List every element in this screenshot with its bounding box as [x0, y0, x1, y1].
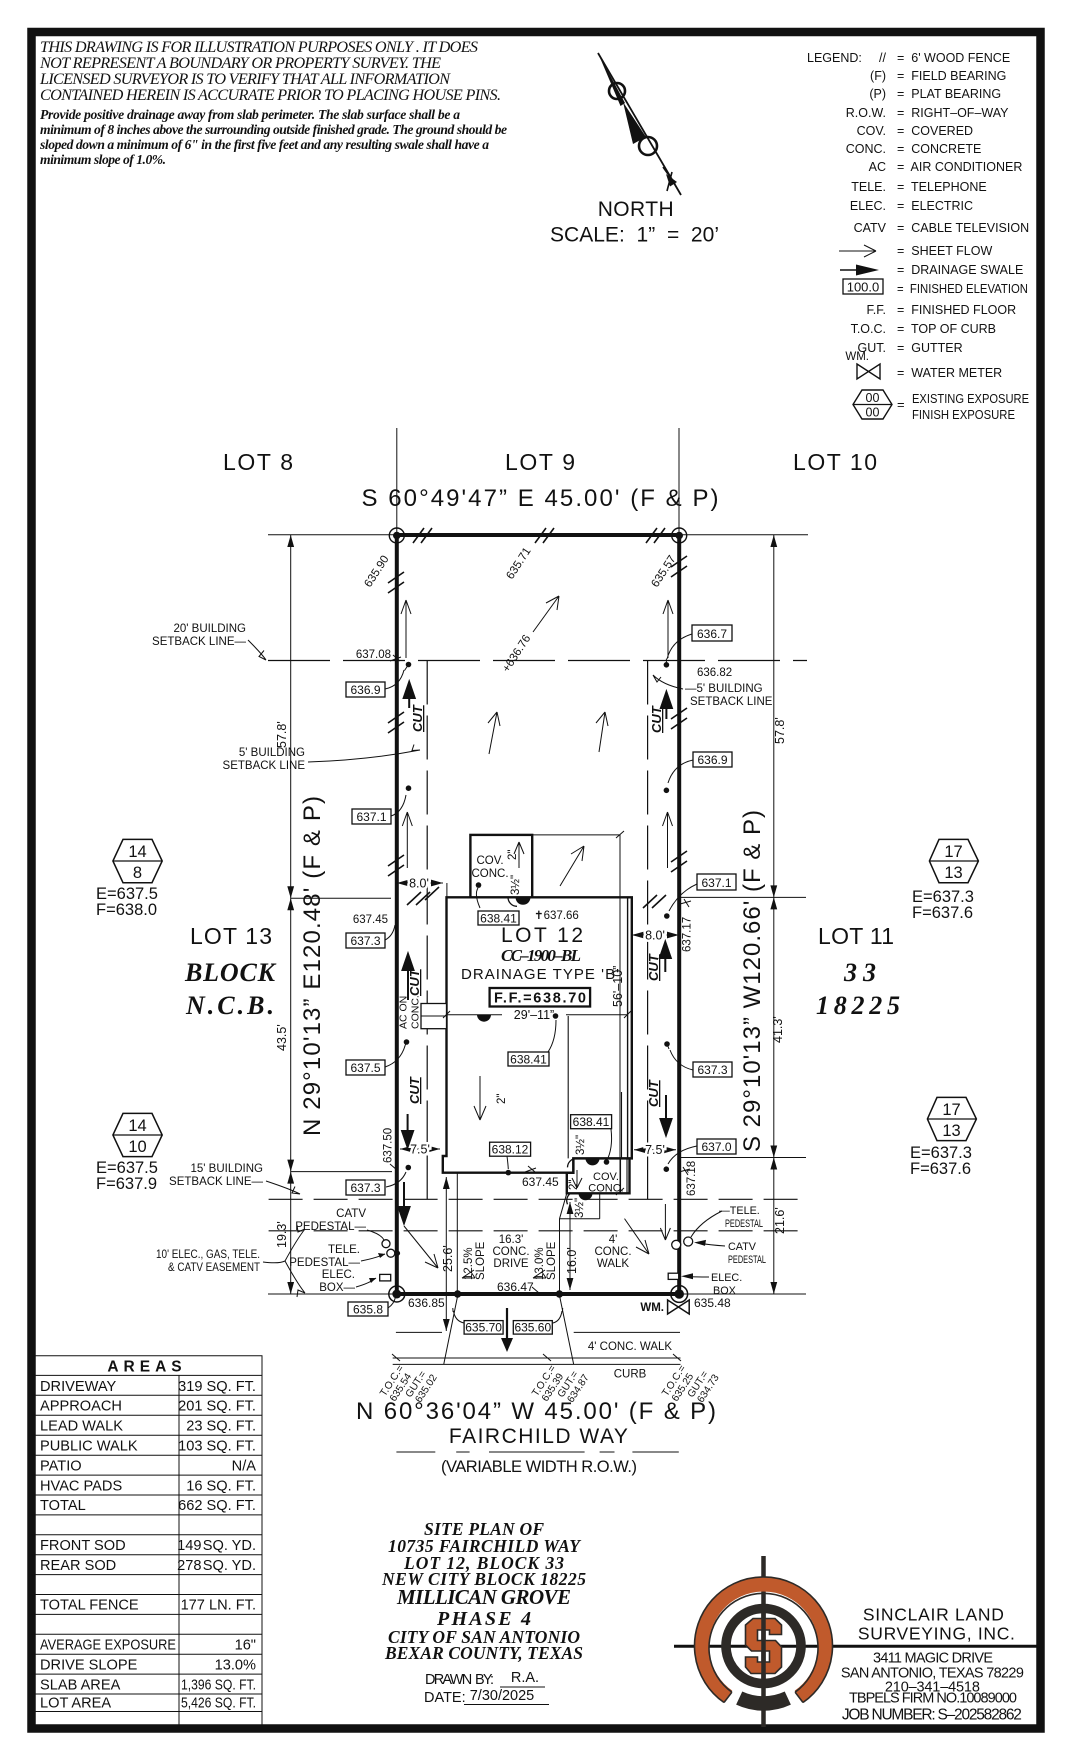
svg-text:201 SQ. FT.: 201 SQ. FT. — [178, 1399, 256, 1415]
svg-text:3½": 3½" — [510, 875, 522, 895]
svg-text:BOX: BOX — [713, 1285, 736, 1297]
svg-text:637.0: 637.0 — [701, 1140, 731, 1154]
svg-text:BEXAR COUNTY, TEXAS: BEXAR COUNTY, TEXAS — [384, 1643, 583, 1663]
svg-text:= 6' WOOD FENCE: = 6' WOOD FENCE — [897, 51, 1010, 65]
svg-text:AREAS: AREAS — [107, 1359, 186, 1376]
svg-text:7/30/2025: 7/30/2025 — [470, 1688, 535, 1704]
svg-text:TELE.: TELE. — [851, 180, 886, 194]
svg-text:13: 13 — [942, 1122, 960, 1140]
svg-text:= FINISHED FLOOR: = FINISHED FLOOR — [897, 303, 1016, 317]
svg-text:637.1: 637.1 — [701, 876, 731, 890]
svg-text:637.3: 637.3 — [350, 934, 380, 948]
svg-text:8: 8 — [133, 864, 142, 882]
svg-text:100.0: 100.0 — [847, 280, 880, 295]
svg-text:= FIELD BEARING: = FIELD BEARING — [897, 69, 1006, 83]
svg-text:minimum of 8 inches above the: minimum of 8 inches above the surroundin… — [40, 122, 507, 137]
svg-text:= FINISHED ELEVATION: = FINISHED ELEVATION — [897, 282, 1028, 296]
svg-text:APPROACH: APPROACH — [40, 1399, 122, 1415]
svg-text:637.08: 637.08 — [356, 649, 391, 661]
svg-text:R.O.W.: R.O.W. — [846, 106, 886, 120]
svg-text:ELEC.: ELEC. — [711, 1272, 742, 1284]
svg-text:00: 00 — [866, 406, 880, 420]
svg-text:TOTAL FENCE: TOTAL FENCE — [40, 1598, 139, 1614]
svg-text:2": 2" — [496, 1094, 508, 1104]
svg-text:= GUTTER: = GUTTER — [897, 341, 963, 355]
svg-text:F=638.0: F=638.0 — [96, 901, 157, 919]
svg-text:LEGEND:: LEGEND: — [807, 51, 862, 65]
svg-text:LOT 11: LOT 11 — [818, 923, 894, 949]
svg-text:14: 14 — [128, 1117, 146, 1135]
svg-text:638.12: 638.12 — [492, 1143, 529, 1157]
svg-text:TOTAL: TOTAL — [40, 1498, 86, 1514]
svg-text:FAIRCHILD WAY: FAIRCHILD WAY — [449, 1425, 628, 1448]
svg-text:REAR SOD: REAR SOD — [40, 1558, 116, 1574]
svg-text:CONC.: CONC. — [594, 1246, 631, 1258]
svg-text:SETBACK LINE—: SETBACK LINE— — [169, 1176, 263, 1188]
svg-text:(F): (F) — [870, 69, 886, 83]
svg-text:sloped down a minimum of 6" in: sloped down a minimum of 6" in the first… — [39, 137, 489, 152]
svg-text:CUT: CUT — [649, 705, 664, 733]
svg-text:= ELECTRIC: = ELECTRIC — [897, 199, 973, 213]
svg-text:5' BUILDING: 5' BUILDING — [239, 747, 305, 759]
svg-text:F=637.6: F=637.6 — [910, 1160, 971, 1178]
svg-text:637.18: 637.18 — [686, 1161, 698, 1196]
svg-text:20' BUILDING: 20' BUILDING — [174, 623, 247, 635]
svg-text:Provide positive drainage away: Provide positive drainage away from slab… — [40, 107, 460, 122]
svg-text:CONC.: CONC. — [492, 1246, 529, 1258]
svg-text:17: 17 — [944, 843, 962, 861]
svg-text:CUT: CUT — [646, 1079, 661, 1107]
svg-text:SETBACK LINE—: SETBACK LINE— — [152, 636, 246, 648]
svg-text:637.50: 637.50 — [383, 1128, 395, 1163]
svg-text:= RIGHT–OF–WAY: = RIGHT–OF–WAY — [897, 106, 1009, 120]
svg-text:SLOPE: SLOPE — [475, 1241, 487, 1280]
svg-text:4' CONC. WALK: 4' CONC. WALK — [588, 1341, 673, 1353]
svg-text:13.0%: 13.0% — [215, 1657, 256, 1673]
svg-text:= TELEPHONE: = TELEPHONE — [897, 180, 987, 194]
svg-text:1,396 SQ. FT.: 1,396 SQ. FT. — [181, 1677, 256, 1693]
svg-text:638.41: 638.41 — [480, 912, 517, 926]
svg-text:13: 13 — [944, 864, 962, 882]
svg-text:S 60°49'47” E 45.00' (F & P): S 60°49'47” E 45.00' (F & P) — [362, 485, 719, 512]
svg-text:7.5': 7.5' — [410, 1143, 430, 1157]
svg-text:635.48: 635.48 — [694, 1296, 731, 1310]
svg-text:637.1: 637.1 — [356, 810, 386, 824]
svg-text:SINCLAIR LAND: SINCLAIR LAND — [863, 1604, 1004, 1624]
svg-text:S 29°10'13” W120.66' (F & P): S 29°10'13” W120.66' (F & P) — [739, 810, 766, 1152]
svg-text:= CONCRETE: = CONCRETE — [897, 142, 981, 156]
svg-text:LOT AREA: LOT AREA — [40, 1696, 111, 1712]
svg-text:= AIR CONDITIONER: = AIR CONDITIONER — [897, 160, 1022, 174]
svg-text:EXISTING EXPOSURE: EXISTING EXPOSURE — [912, 392, 1029, 406]
svg-text:CUT: CUT — [646, 953, 661, 981]
svg-text:635.60: 635.60 — [514, 1321, 551, 1335]
svg-text:21.6': 21.6' — [773, 1207, 787, 1234]
svg-text:TELE.: TELE. — [328, 1244, 360, 1256]
svg-text:177 LN. FT.: 177 LN. FT. — [181, 1598, 256, 1614]
svg-text:COV.: COV. — [857, 124, 886, 138]
svg-text:3½": 3½" — [575, 1135, 587, 1155]
svg-text:637.3: 637.3 — [697, 1063, 727, 1077]
svg-text:✝637.66: ✝637.66 — [534, 910, 579, 922]
svg-text:= SHEET FLOW: = SHEET FLOW — [897, 244, 992, 258]
svg-text:DRIVE: DRIVE — [493, 1258, 528, 1270]
svg-text:CC–1900–BL: CC–1900–BL — [501, 946, 581, 965]
svg-text:NORTH: NORTH — [598, 198, 674, 221]
svg-text:= TOP OF CURB: = TOP OF CURB — [897, 322, 996, 336]
svg-text:DRAINAGE TYPE 'B': DRAINAGE TYPE 'B' — [461, 966, 619, 983]
svg-text:F=637.6: F=637.6 — [912, 904, 973, 922]
svg-text:—5' BUILDING: —5' BUILDING — [685, 683, 763, 695]
svg-text:AC ON: AC ON — [398, 996, 410, 1029]
svg-text:WM.: WM. — [640, 1302, 664, 1314]
svg-text:3411 MAGIC DRIVE: 3411 MAGIC DRIVE — [873, 1651, 993, 1667]
svg-text:636.85: 636.85 — [408, 1296, 445, 1310]
svg-text:= COVERED: = COVERED — [897, 124, 973, 138]
svg-text:= WATER METER: = WATER METER — [897, 366, 1002, 380]
svg-text:CUT: CUT — [410, 704, 425, 732]
svg-text:CONTAINED HEREIN IS ACCURATE P: CONTAINED HEREIN IS ACCURATE PRIOR TO PL… — [40, 86, 501, 104]
svg-text:319 SQ. FT.: 319 SQ. FT. — [178, 1379, 256, 1395]
svg-text:DRIVEWAY: DRIVEWAY — [40, 1379, 116, 1395]
svg-text:635.8: 635.8 — [353, 1303, 383, 1317]
svg-text:COV.: COV. — [593, 1171, 619, 1183]
svg-text:57.8': 57.8' — [773, 717, 787, 744]
svg-text:(P): (P) — [869, 87, 886, 101]
svg-text:AC: AC — [869, 160, 886, 174]
svg-text:10: 10 — [128, 1138, 146, 1156]
svg-text:4': 4' — [609, 1234, 618, 1246]
svg-text:PATIO: PATIO — [40, 1458, 82, 1474]
svg-text:PEDESTAL—: PEDESTAL— — [295, 1221, 366, 1233]
svg-text:= CABLE TELEVISION: = CABLE TELEVISION — [897, 221, 1029, 235]
svg-text:FRONT SOD: FRONT SOD — [40, 1538, 126, 1554]
svg-text:636.9: 636.9 — [350, 683, 380, 697]
svg-text:= PLAT BEARING: = PLAT BEARING — [897, 87, 1001, 101]
svg-text:14: 14 — [128, 843, 146, 861]
svg-text:103 SQ. FT.: 103 SQ. FT. — [178, 1439, 256, 1455]
svg-text:635.70: 635.70 — [465, 1321, 502, 1335]
svg-text:662 SQ. FT.: 662 SQ. FT. — [178, 1498, 256, 1514]
svg-text:LOT 9: LOT 9 — [505, 449, 575, 475]
svg-text:(VARIABLE WIDTH R.O.W.): (VARIABLE WIDTH R.O.W.) — [441, 1458, 637, 1476]
svg-text:F.F.=638.70: F.F.=638.70 — [494, 991, 586, 1007]
svg-text:CURB: CURB — [614, 1369, 647, 1381]
svg-text:19.3': 19.3' — [275, 1221, 289, 1248]
svg-text:16": 16" — [235, 1638, 256, 1654]
svg-text:637.3: 637.3 — [350, 1181, 380, 1195]
svg-text:636.7: 636.7 — [697, 627, 727, 641]
svg-text:WALK: WALK — [597, 1258, 629, 1270]
svg-text:638.41: 638.41 — [573, 1115, 610, 1129]
svg-text:F.F.: F.F. — [867, 303, 886, 317]
svg-text:LOT 13: LOT 13 — [190, 923, 272, 949]
svg-text:LEAD WALK: LEAD WALK — [40, 1419, 123, 1435]
svg-text:CUT: CUT — [407, 1076, 422, 1104]
svg-text:ELEC.: ELEC. — [850, 199, 886, 213]
svg-text:CATV: CATV — [728, 1241, 757, 1253]
svg-text:BLOCK: BLOCK — [184, 958, 277, 987]
svg-text:PEDESTAL: PEDESTAL — [725, 1218, 763, 1230]
svg-text:5,426 SQ. FT.: 5,426 SQ. FT. — [181, 1696, 256, 1712]
svg-text:N 29°10'13” E120.48' (F & P): N 29°10'13” E120.48' (F & P) — [299, 796, 326, 1136]
svg-text:8.0': 8.0' — [409, 877, 429, 891]
svg-text:3½": 3½" — [574, 1198, 586, 1218]
svg-text:PEDESTAL—: PEDESTAL— — [289, 1257, 360, 1269]
svg-text:LOT 10: LOT 10 — [793, 449, 877, 475]
svg-text:SETBACK LINE: SETBACK LINE — [690, 696, 773, 708]
svg-text:= DRAINAGE SWALE: = DRAINAGE SWALE — [897, 263, 1023, 277]
svg-text:HVAC PADS: HVAC PADS — [40, 1478, 122, 1494]
svg-text:SCALE: 1” = 20’: SCALE: 1” = 20’ — [550, 224, 719, 247]
svg-text:ELEC.: ELEC. — [322, 1269, 355, 1281]
svg-text:N.C.B.: N.C.B. — [185, 991, 274, 1020]
svg-text:DRAWN BY:: DRAWN BY: — [425, 1672, 494, 1688]
svg-text:57.8': 57.8' — [275, 721, 289, 748]
svg-text:8.0': 8.0' — [645, 929, 665, 943]
svg-text:16.0': 16.0' — [565, 1247, 579, 1274]
svg-text:18225: 18225 — [816, 991, 900, 1020]
svg-text:PUBLIC WALK: PUBLIC WALK — [40, 1439, 138, 1455]
svg-text:637.45: 637.45 — [522, 1175, 559, 1189]
svg-text:00: 00 — [866, 391, 880, 405]
svg-text:MILLICAN GROVE: MILLICAN GROVE — [396, 1585, 571, 1609]
svg-text:LOT 8: LOT 8 — [223, 449, 293, 475]
svg-text:637.45: 637.45 — [353, 914, 388, 926]
svg-text:DRIVE SLOPE: DRIVE SLOPE — [40, 1657, 138, 1673]
svg-text:COV.: COV. — [476, 855, 503, 867]
svg-text:T.O.C.: T.O.C. — [851, 322, 886, 336]
svg-text:15' BUILDING: 15' BUILDING — [191, 1163, 264, 1175]
svg-text:17: 17 — [942, 1101, 960, 1119]
svg-text:R.A.: R.A. — [511, 1670, 539, 1686]
svg-text:CUT: CUT — [407, 968, 422, 996]
svg-text:WM.: WM. — [845, 351, 869, 363]
svg-text:29'–11”: 29'–11” — [514, 1008, 554, 1022]
svg-text:636.47: 636.47 — [497, 1280, 534, 1294]
svg-text:PEDESTAL: PEDESTAL — [728, 1254, 766, 1266]
svg-text:10' ELEC., GAS, TELE.: 10' ELEC., GAS, TELE. — [156, 1249, 260, 1261]
svg-text:25.6': 25.6' — [441, 1245, 455, 1272]
svg-text:56'–10”: 56'–10” — [611, 966, 625, 1007]
svg-text:637.17: 637.17 — [682, 917, 694, 952]
svg-text://: // — [879, 51, 886, 65]
svg-text:SURVEYING, INC.: SURVEYING, INC. — [858, 1624, 1015, 1644]
svg-text:F=637.9: F=637.9 — [96, 1175, 157, 1193]
svg-text:minimum slope of 1.0%.: minimum slope of 1.0%. — [40, 152, 166, 167]
svg-text:41.3': 41.3' — [771, 1016, 785, 1043]
svg-text:SLOPE: SLOPE — [546, 1241, 558, 1280]
svg-text:CONC.: CONC. — [471, 868, 508, 880]
svg-text:CONC.: CONC. — [846, 142, 886, 156]
svg-text:CATV: CATV — [336, 1208, 366, 1220]
svg-text:2": 2" — [507, 850, 519, 860]
svg-text:23 SQ. FT.: 23 SQ. FT. — [186, 1419, 256, 1435]
svg-text:638.41: 638.41 — [510, 1053, 547, 1067]
svg-text:& CATV EASEMENT: & CATV EASEMENT — [168, 1262, 260, 1274]
svg-text:16.3': 16.3' — [499, 1234, 524, 1246]
svg-text:TBPELS FIRM NO.10089000: TBPELS FIRM NO.10089000 — [849, 1691, 1017, 1707]
svg-text:SLAB AREA: SLAB AREA — [40, 1677, 121, 1693]
svg-text:43.5': 43.5' — [275, 1024, 289, 1051]
svg-text:BOX—: BOX— — [319, 1282, 355, 1294]
svg-text:278 SQ. YD.: 278 SQ. YD. — [177, 1558, 256, 1574]
svg-text:JOB NUMBER: S–202582862: JOB NUMBER: S–202582862 — [842, 1707, 1022, 1724]
svg-text:637.5: 637.5 — [350, 1061, 380, 1075]
svg-text:CATV: CATV — [854, 221, 887, 235]
svg-text:636.82: 636.82 — [697, 667, 732, 679]
svg-text:CONC.: CONC. — [410, 995, 422, 1029]
svg-text:149 SQ. YD.: 149 SQ. YD. — [177, 1538, 256, 1554]
svg-text:—TELE.: —TELE. — [719, 1205, 760, 1217]
svg-text:DATE:: DATE: — [424, 1690, 466, 1706]
svg-text:=: = — [897, 397, 905, 412]
svg-text:16 SQ. FT.: 16 SQ. FT. — [186, 1478, 256, 1494]
svg-text:7.5': 7.5' — [645, 1143, 665, 1157]
svg-text:FINISH EXPOSURE: FINISH EXPOSURE — [912, 408, 1015, 422]
svg-text:N/A: N/A — [232, 1458, 257, 1474]
svg-text:636.9: 636.9 — [697, 753, 727, 767]
svg-text:AVERAGE EXPOSURE: AVERAGE EXPOSURE — [40, 1638, 176, 1654]
svg-text:SETBACK LINE: SETBACK LINE — [223, 760, 306, 772]
